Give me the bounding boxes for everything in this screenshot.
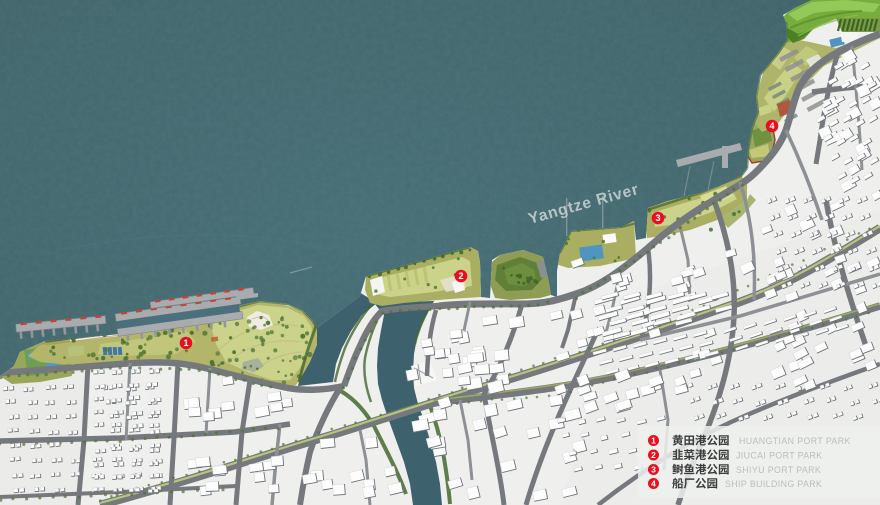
svg-text:1: 1 — [183, 338, 188, 348]
svg-text:HUANGTIAN PORT PARK: HUANGTIAN PORT PARK — [739, 436, 851, 446]
svg-text:4: 4 — [651, 479, 656, 489]
svg-text:SHIYU PORT PARK: SHIYU PORT PARK — [736, 465, 821, 475]
svg-text:3: 3 — [651, 465, 656, 475]
svg-text:4: 4 — [769, 121, 774, 131]
svg-text:SHIP BUILDING PARK: SHIP BUILDING PARK — [725, 479, 822, 489]
svg-text:3: 3 — [655, 213, 660, 223]
svg-text:2: 2 — [458, 271, 463, 281]
svg-text:1: 1 — [651, 436, 656, 446]
svg-text:JIUCAI PORT PARK: JIUCAI PORT PARK — [736, 451, 823, 461]
svg-text:2: 2 — [651, 450, 656, 460]
